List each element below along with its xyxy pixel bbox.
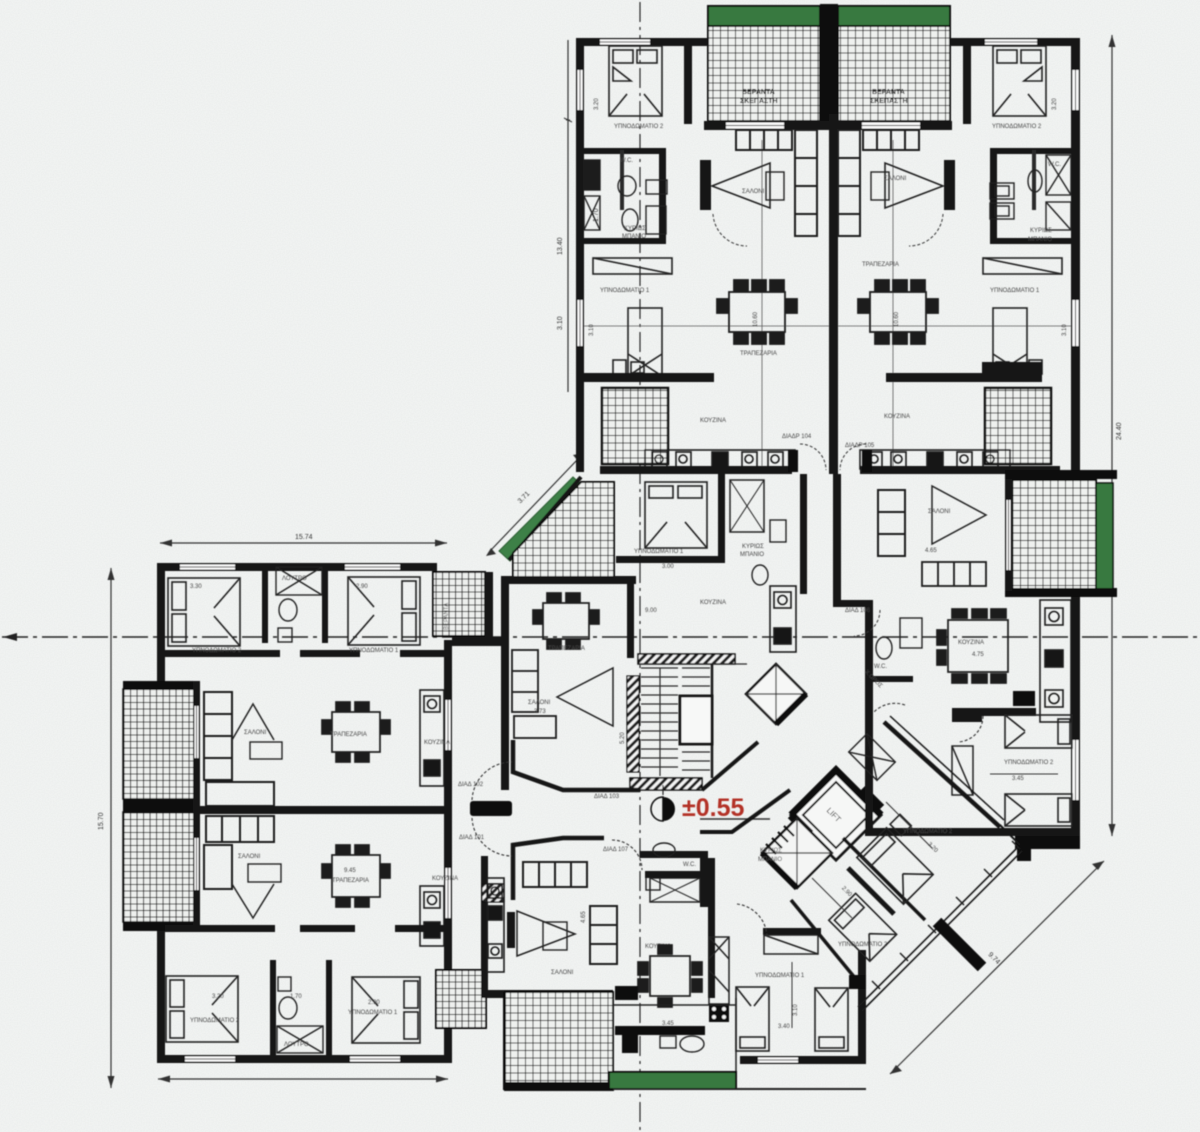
svg-text:ΤΡΑΠΕΖΑΡΙΑ: ΤΡΑΠΕΖΑΡΙΑ xyxy=(330,732,367,738)
svg-text:ΥΠΝΟΔΩΜΑΤΙΟ 2: ΥΠΝΟΔΩΜΑΤΙΟ 2 xyxy=(992,124,1042,130)
svg-text:15.70: 15.70 xyxy=(98,812,105,830)
svg-text:ΜΠΑΝΙΟ: ΜΠΑΝΙΟ xyxy=(622,234,646,240)
svg-text:2.90: 2.90 xyxy=(368,1000,380,1006)
svg-text:3.45: 3.45 xyxy=(1012,776,1024,782)
svg-text:10.60: 10.60 xyxy=(894,311,900,327)
svg-text:3.73: 3.73 xyxy=(534,709,546,715)
svg-text:ΣΑΛΟΝΙ: ΣΑΛΟΝΙ xyxy=(244,730,267,736)
svg-text:ΒΕΡΑΝΤΑ: ΒΕΡΑΝΤΑ xyxy=(872,89,905,96)
svg-text:ΔΙΑΔ 102: ΔΙΑΔ 102 xyxy=(458,782,484,788)
svg-text:ΔΙΑΔ 101: ΔΙΑΔ 101 xyxy=(459,835,485,841)
svg-text:ΥΠΝΟΔΩΜΑΤΙΟ 1: ΥΠΝΟΔΩΜΑΤΙΟ 1 xyxy=(990,288,1040,294)
svg-text:ΛΟΥΤΡΟ: ΛΟΥΤΡΟ xyxy=(284,1042,309,1048)
svg-text:15.74: 15.74 xyxy=(295,534,313,541)
svg-text:ΣΑΛΟΝΙ: ΣΑΛΟΝΙ xyxy=(742,189,765,195)
svg-text:ΜΠΑΝΙΟ: ΜΠΑΝΙΟ xyxy=(758,857,782,863)
svg-text:ΤΡΑΠΕΖΑΡΙΑ: ΤΡΑΠΕΖΑΡΙΑ xyxy=(862,262,899,268)
svg-text:3.30: 3.30 xyxy=(190,584,202,590)
svg-text:3.10: 3.10 xyxy=(793,1004,799,1016)
svg-text:ΔΙΑΔ 107: ΔΙΑΔ 107 xyxy=(603,847,629,853)
svg-text:ΥΠΝΟΔΩΜΑΤΙΟ 1: ΥΠΝΟΔΩΜΑΤΙΟ 1 xyxy=(755,973,805,979)
svg-text:1.70: 1.70 xyxy=(290,994,302,1000)
svg-text:3.40: 3.40 xyxy=(778,1024,790,1030)
svg-text:ΚΟΥΖΙΝΑ: ΚΟΥΖΙΝΑ xyxy=(958,640,984,646)
svg-text:5.20: 5.20 xyxy=(620,732,626,744)
svg-text:ΚΥΡΙΩΣ: ΚΥΡΙΩΣ xyxy=(1030,228,1052,234)
svg-text:ΜΠΑΝΙΟ: ΜΠΑΝΙΟ xyxy=(1028,237,1052,243)
svg-text:ΥΠΝΟΔΩΜΑΤΙΟ 2: ΥΠΝΟΔΩΜΑΤΙΟ 2 xyxy=(190,1018,240,1024)
svg-text:ΚΥΡΙΩΣ: ΚΥΡΙΩΣ xyxy=(624,226,646,232)
svg-text:ΒΕΡΑΝΤΑ: ΒΕΡΑΝΤΑ xyxy=(444,603,450,630)
svg-text:ΣΑΛΟΝΙ: ΣΑΛΟΝΙ xyxy=(238,854,261,860)
svg-text:ΒΕΡΑΝΤΑ: ΒΕΡΑΝΤΑ xyxy=(742,89,775,96)
svg-text:ΣΑΛΟΝΙ: ΣΑΛΟΝΙ xyxy=(928,509,951,515)
svg-text:ΣΑΛΟΝΙ: ΣΑΛΟΝΙ xyxy=(528,700,551,706)
svg-text:3.20: 3.20 xyxy=(212,994,224,1000)
svg-text:ΥΠΝΟΔΩΜΑΤΙΟ 2: ΥΠΝΟΔΩΜΑΤΙΟ 2 xyxy=(838,942,888,948)
svg-text:4.65: 4.65 xyxy=(581,911,587,923)
svg-text:ΣΑΛΟΝΙ: ΣΑΛΟΝΙ xyxy=(551,970,574,976)
svg-text:ΥΠΝΟΔΩΜΑΤΙΟ 1: ΥΠΝΟΔΩΜΑΤΙΟ 1 xyxy=(348,1010,398,1016)
svg-text:13.40: 13.40 xyxy=(557,237,564,255)
svg-text:3.00: 3.00 xyxy=(662,564,674,570)
svg-text:4.65: 4.65 xyxy=(925,548,937,554)
svg-text:ΔΙΑΔ 103: ΔΙΑΔ 103 xyxy=(594,794,620,800)
svg-text:ΤΡΑΠΕΖΑΡΙΑ: ΤΡΑΠΕΖΑΡΙΑ xyxy=(740,351,777,357)
svg-text:9.00: 9.00 xyxy=(645,608,657,614)
svg-text:ΜΠΑΝΙΟ: ΜΠΑΝΙΟ xyxy=(740,552,764,558)
svg-text:ΥΠΝΟΔΩΜΑΤΙΟ 2: ΥΠΝΟΔΩΜΑΤΙΟ 2 xyxy=(192,648,242,654)
svg-text:2.90: 2.90 xyxy=(356,584,368,590)
svg-text:ΥΠΝΟΔΩΜΑΤΙΟ 2: ΥΠΝΟΔΩΜΑΤΙΟ 2 xyxy=(1004,760,1054,766)
svg-text:24.40: 24.40 xyxy=(1116,422,1123,440)
svg-text:ΔΙΑΔ 106: ΔΙΑΔ 106 xyxy=(845,608,871,614)
svg-text:W.C.: W.C. xyxy=(1048,162,1061,168)
svg-text:ΛΟΥΤΡΟ: ΛΟΥΤΡΟ xyxy=(282,576,307,582)
svg-text:ΥΠΝΟΔΩΜΑΤΙΟ 1: ΥΠΝΟΔΩΜΑΤΙΟ 1 xyxy=(634,549,684,555)
svg-text:ΚΟΥΖΙΝΑ: ΚΟΥΖΙΝΑ xyxy=(884,414,910,420)
svg-text:ΚΥΡΙΩΣ: ΚΥΡΙΩΣ xyxy=(760,848,782,854)
svg-text:4.75: 4.75 xyxy=(972,652,984,658)
svg-text:ΚΥΡΙΩΣ: ΚΥΡΙΩΣ xyxy=(742,544,764,550)
svg-text:ΚΟΥΖΙΝΑ: ΚΟΥΖΙΝΑ xyxy=(432,876,458,882)
svg-text:ΣΚΕΠΑΣΤΗ: ΣΚΕΠΑΣΤΗ xyxy=(870,98,908,105)
svg-text:ΥΠΝΟΔΩΜΑΤΙΟ 2: ΥΠΝΟΔΩΜΑΤΙΟ 2 xyxy=(614,124,664,130)
svg-text:ΥΠΝΟΔΩΜΑΤΙΟ 2: ΥΠΝΟΔΩΜΑΤΙΟ 2 xyxy=(903,829,953,835)
svg-text:ΚΟΥΖΙΝΑ: ΚΟΥΖΙΝΑ xyxy=(700,418,726,424)
svg-text:ΚΟΥΖΙΝΑ: ΚΟΥΖΙΝΑ xyxy=(424,740,450,746)
svg-text:3.10: 3.10 xyxy=(589,324,595,336)
svg-text:W.C.: W.C. xyxy=(620,158,633,164)
svg-text:ΤΡΑΠΕΖΑΡΙΑ: ΤΡΑΠΕΖΑΡΙΑ xyxy=(548,646,585,652)
svg-text:9.45: 9.45 xyxy=(344,868,356,874)
svg-text:ΚΟΥΖΙΝΑ: ΚΟΥΖΙΝΑ xyxy=(700,600,726,606)
svg-text:1.70: 1.70 xyxy=(593,208,600,222)
svg-text:3.20: 3.20 xyxy=(594,98,600,110)
svg-text:ΔΙΑΔΡ 105: ΔΙΑΔΡ 105 xyxy=(845,443,875,449)
svg-text:ΣΑΛΟΝΙ: ΣΑΛΟΝΙ xyxy=(884,176,907,182)
svg-text:3.10: 3.10 xyxy=(557,316,564,330)
svg-text:10.60: 10.60 xyxy=(753,311,759,327)
svg-text:3.20: 3.20 xyxy=(1052,98,1058,110)
svg-text:W.C.: W.C. xyxy=(683,862,696,868)
svg-text:ΔΙΑΔΡ 104: ΔΙΑΔΡ 104 xyxy=(782,434,812,440)
svg-text:ΥΠΝΟΔΩΜΑΤΙΟ 1: ΥΠΝΟΔΩΜΑΤΙΟ 1 xyxy=(600,288,650,294)
svg-text:W.C.: W.C. xyxy=(874,664,887,670)
svg-text:ΤΡΑΠΕΖΑΡΙΑ: ΤΡΑΠΕΖΑΡΙΑ xyxy=(332,878,369,884)
svg-text:ΣΚΕΠΑΣΤΗ: ΣΚΕΠΑΣΤΗ xyxy=(740,98,778,105)
svg-text:±0.55: ±0.55 xyxy=(682,794,744,822)
svg-text:3.10: 3.10 xyxy=(1062,324,1068,336)
svg-text:ΥΠΝΟΔΩΜΑΤΙΟ 1: ΥΠΝΟΔΩΜΑΤΙΟ 1 xyxy=(349,648,399,654)
